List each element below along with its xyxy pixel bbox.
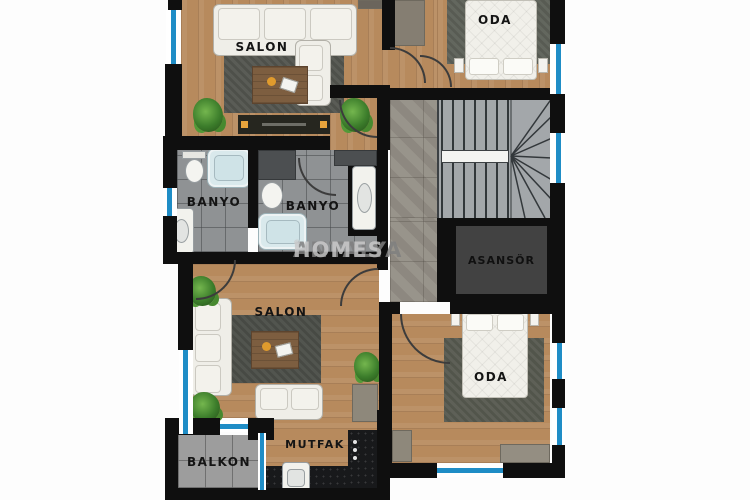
stair-flight-lower [441,163,513,218]
wall [178,262,193,350]
window [552,343,565,379]
toilet [182,151,206,159]
nightstand [451,312,460,326]
window [550,133,565,183]
wall [163,150,177,188]
room-label-salon-bottom: SALON [241,305,321,319]
wall [163,136,330,150]
nightstand [530,312,539,326]
wall [390,302,400,314]
balcony-door-window [220,421,248,432]
pillow [469,58,499,75]
nightstand [538,58,548,73]
wall [552,302,565,343]
dresser [500,444,550,463]
wall [382,0,395,50]
room-label-banyo-right: BANYO [273,199,353,213]
wardrobe [392,430,412,462]
room-label-balkon: BALKON [179,455,259,469]
wardrobe [390,0,425,46]
pillow [466,314,493,331]
staircase [437,96,550,218]
coffee-table [251,331,299,369]
nightstand [454,58,464,73]
sideboard [352,384,378,422]
bath-counter [334,150,377,166]
window [437,464,503,477]
loveseat [255,384,323,420]
wall [330,85,390,98]
stair-landing [441,150,509,163]
wall [550,94,565,133]
sofa-l-shaped [190,298,232,396]
wall [450,302,565,314]
toilet-bowl [185,159,204,183]
wall [248,150,258,228]
coffee-table [252,66,308,104]
wall [550,0,565,44]
window [550,44,565,94]
bathtub [208,149,250,187]
floor-plan: ASANSÖR [0,0,750,500]
elevator-label: ASANSÖR [468,254,535,267]
window [552,408,565,445]
wall [552,379,565,408]
stair-flight-upper [441,96,513,150]
plant [193,98,223,132]
stair-winders [507,96,552,218]
wall [377,410,390,500]
balcony-side-window [258,433,266,490]
plant [354,352,380,382]
wall [552,445,565,478]
window [179,350,193,434]
wall [168,0,182,10]
wall [390,463,437,478]
room-label-oda-top: ODA [461,13,529,27]
watermark-brand-light: HOMES [293,238,384,262]
room-label-oda-bottom: ODA [451,370,531,384]
room-label-salon-top: SALON [222,40,302,54]
bath-cabinet [258,150,296,180]
sink [352,166,376,230]
room-label-banyo-left: BANYO [174,195,254,209]
wall-cabinet [358,0,382,9]
window [166,10,181,64]
watermark-registered: ® [293,238,302,247]
pillow [503,58,533,75]
tv-unit [238,115,330,134]
wall [377,98,390,150]
room-label-mutfak: MUTFAK [275,438,355,451]
pillow [497,314,524,331]
floor-hallway [390,100,437,218]
elevator: ASANSÖR [456,226,547,294]
wall [165,488,390,500]
wall [390,88,565,100]
